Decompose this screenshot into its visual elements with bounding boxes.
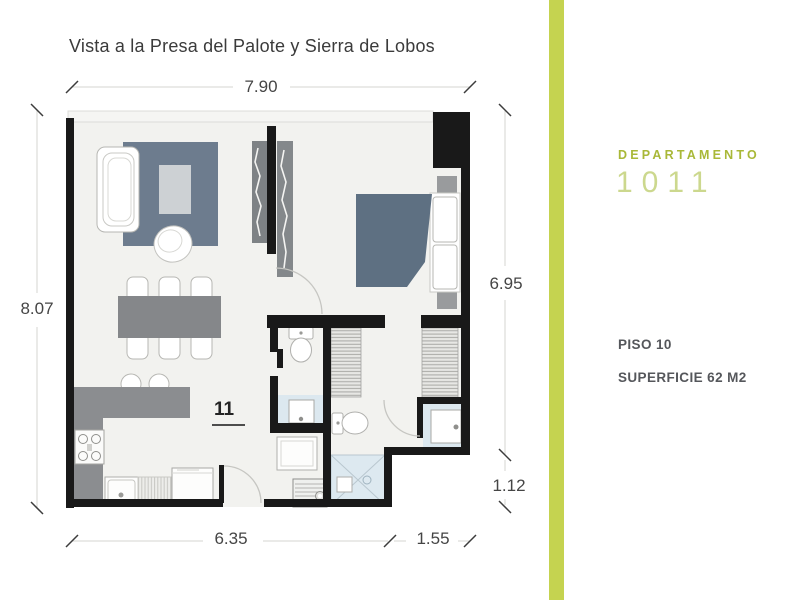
dimension-top: 7.90: [238, 77, 284, 97]
utility-box: [277, 437, 317, 470]
coffee-table: [159, 165, 191, 214]
tv-console: [252, 141, 267, 243]
unit-number: 11: [214, 399, 234, 421]
dimension-right-lower: 1.12: [486, 476, 532, 496]
window-band: [68, 111, 433, 122]
pillow: [433, 245, 457, 289]
dimension-right: 6.95: [483, 274, 529, 294]
department-number: 1011: [616, 166, 717, 200]
nightstand: [437, 176, 457, 193]
floor-label: PISO 10: [618, 337, 672, 352]
nightstand: [437, 292, 457, 309]
stove: [75, 430, 104, 464]
unit-number-underline: [212, 424, 245, 426]
floorplan-sheet: Vista a la Presa del Palote y Sierra de …: [0, 0, 800, 600]
dining-table: [118, 296, 221, 338]
toilet: [332, 412, 368, 434]
sofa: [97, 147, 139, 232]
entry-door-leaf: [219, 465, 224, 503]
door-leaf: [417, 398, 423, 438]
shower: [331, 455, 385, 505]
accent-bar: [549, 0, 564, 600]
bed: [356, 193, 460, 292]
department-label: DEPARTAMENTO: [618, 148, 760, 162]
pocket-door: [277, 349, 283, 368]
surface-label: SUPERFICIE 62 M2: [618, 370, 747, 385]
floorplan-drawing: [0, 0, 800, 600]
dimension-bottom-right: 1.55: [410, 529, 456, 549]
shaft: [433, 112, 470, 168]
washbasin: [289, 400, 314, 423]
closet-shelves: [422, 328, 458, 397]
dimension-left: 8.07: [14, 299, 60, 319]
dining-area: [118, 277, 221, 359]
pillow: [433, 197, 457, 242]
vanity-sink: [431, 410, 461, 443]
dimension-bottom: 6.35: [208, 529, 254, 549]
closet-shelves: [331, 328, 361, 397]
toilet: [289, 327, 313, 362]
page-title: Vista a la Presa del Palote y Sierra de …: [69, 36, 435, 57]
shower-drain: [337, 477, 352, 492]
